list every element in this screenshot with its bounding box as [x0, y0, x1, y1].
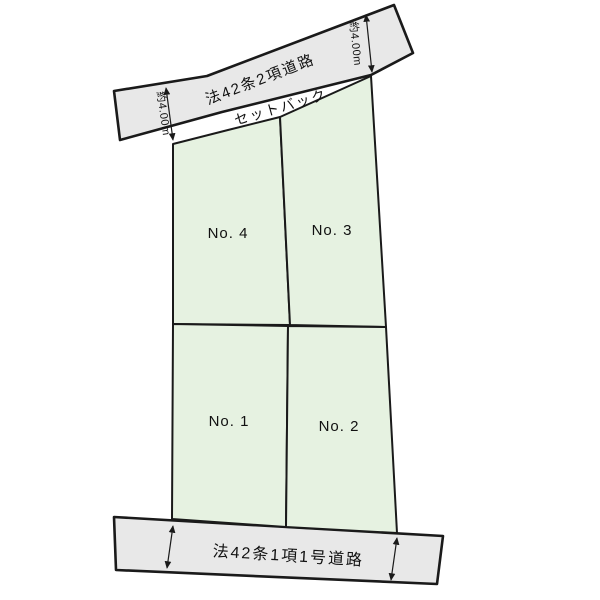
lot-no3-region [280, 76, 386, 327]
plot-layout-diagram: 法42条2項道路 セットバック 法42条1項1号道路 約4.00m 約4.00m… [0, 0, 600, 600]
lot-no4-label: No. 4 [208, 225, 249, 242]
lot-no4-region [173, 117, 290, 325]
lot-no3-label: No. 3 [312, 222, 353, 239]
plot-layout-svg: 法42条2項道路 セットバック 法42条1項1号道路 約4.00m 約4.00m… [0, 0, 600, 600]
lot-no1-label: No. 1 [209, 413, 250, 430]
lot-no2-label: No. 2 [319, 418, 360, 435]
